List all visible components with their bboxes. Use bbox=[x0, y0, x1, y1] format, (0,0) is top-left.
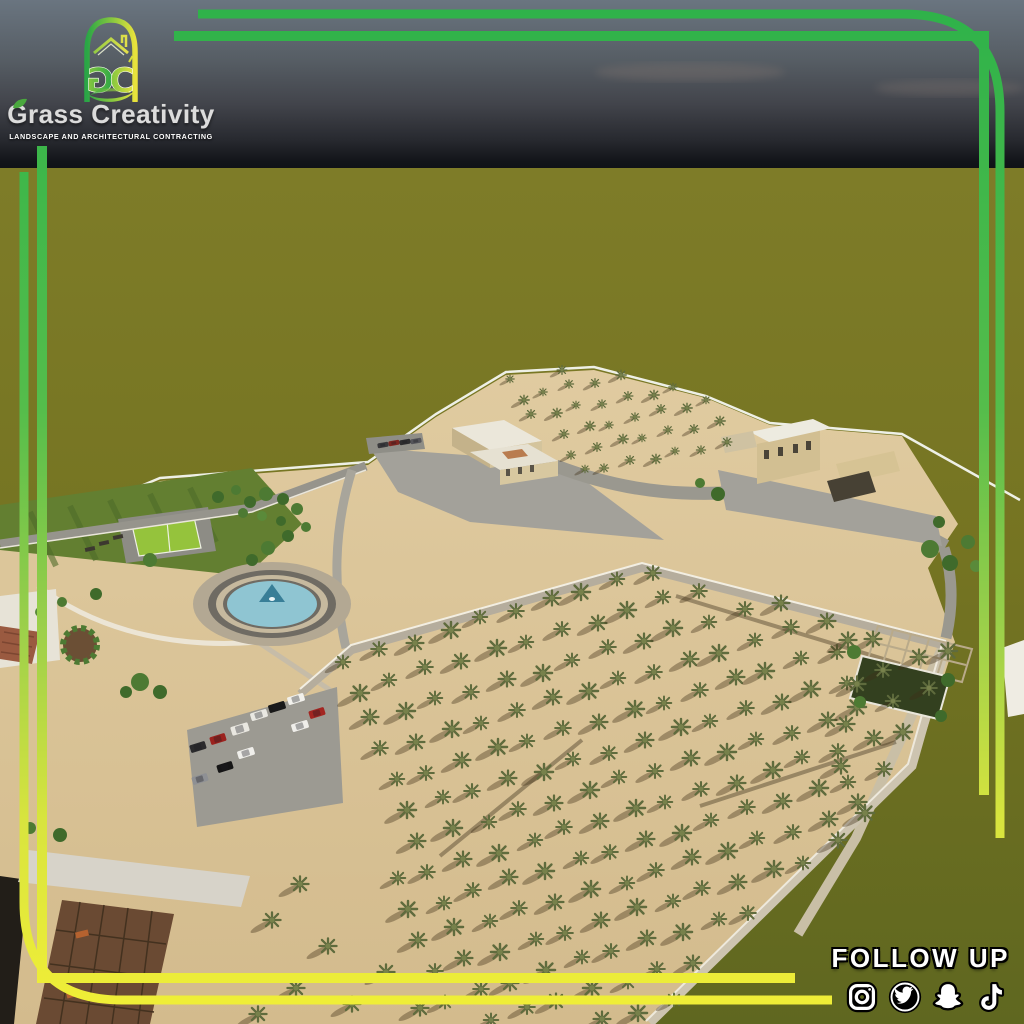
logo-house-roof bbox=[94, 36, 128, 55]
twitter-icon[interactable] bbox=[886, 978, 924, 1016]
logo-monogram: G C bbox=[5, 6, 217, 102]
cloud bbox=[875, 80, 1024, 96]
cloud bbox=[595, 63, 785, 81]
fountain bbox=[193, 562, 351, 646]
instagram-icon[interactable] bbox=[843, 978, 881, 1016]
aerial-render bbox=[0, 0, 1024, 1024]
snapchat-icon[interactable] bbox=[929, 978, 967, 1016]
social-footer: FOLLOW UP bbox=[832, 943, 1010, 1016]
tiktok-icon[interactable] bbox=[972, 978, 1010, 1016]
brand-tagline: LANDSCAPE AND ARCHITECTURAL CONTRACTING bbox=[4, 132, 218, 141]
logo-letters: G C bbox=[86, 61, 134, 101]
brand-name: Grass Creativity bbox=[4, 99, 218, 130]
round-garden bbox=[63, 628, 97, 662]
west-buildings bbox=[0, 589, 60, 668]
brand-logo: G C Grass Creativity LANDSCAPE AND ARCHI… bbox=[4, 6, 218, 141]
social-icons bbox=[832, 978, 1010, 1016]
post-canvas: G C Grass Creativity LANDSCAPE AND ARCHI… bbox=[0, 0, 1024, 1024]
leaf-icon bbox=[12, 98, 28, 110]
follow-up-label: FOLLOW UP bbox=[832, 943, 1010, 974]
